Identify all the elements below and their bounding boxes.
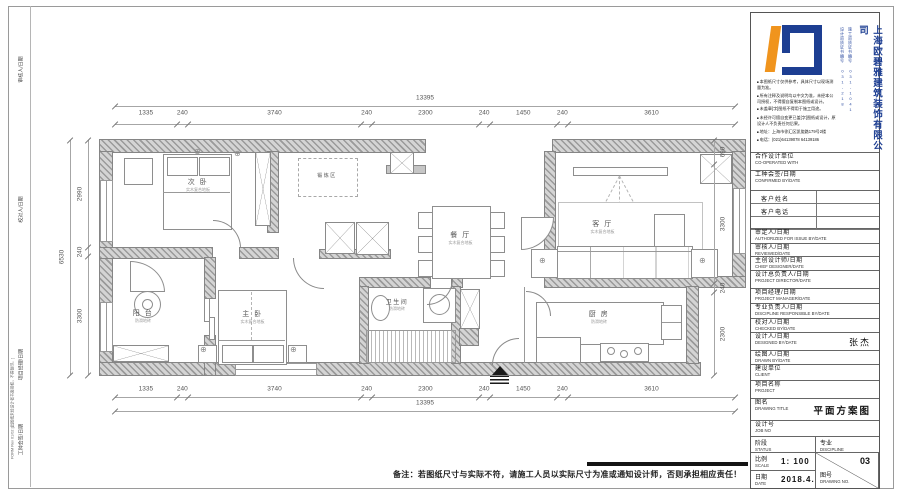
title-block-row: 建设单位CLIENT xyxy=(751,365,879,381)
drawing-number-value: 03 xyxy=(860,456,870,466)
wall-balcony-divider-top xyxy=(205,258,215,298)
title-block-row: 设计总负责人/日期PROJECT DIRECTOR/DATE xyxy=(751,271,879,289)
room-label-bathroom: 卫生间 防滑地砖 xyxy=(372,297,422,312)
title-block-row: 图名DRAWING TITLE平面方案图 xyxy=(751,399,879,421)
dimension-line xyxy=(115,124,735,125)
title-block-row: 设计号JOB NO xyxy=(751,421,879,437)
title-block-row: 审核人/日期REVIEWED/DATE xyxy=(751,244,879,257)
date-value: 2018.4.17 xyxy=(781,475,816,484)
company-logo-icon xyxy=(765,26,781,72)
company-name: 上海欧碧雅建筑装饰有限公司 xyxy=(855,25,883,155)
dimension-line xyxy=(115,397,735,398)
dimension-label: 240 xyxy=(557,110,568,117)
drawing-note: 电话：(021)64139078 64139186 xyxy=(757,137,837,143)
door-arc-kitchen xyxy=(526,291,551,316)
pillow xyxy=(222,345,253,363)
drawing-note: 地址：上海市徐汇区凯旋路179号2楼 xyxy=(757,129,837,135)
title-block-row: 专业负责人/日期DISCIPLINE RESPONSIBLE BY/DATE xyxy=(751,304,879,319)
dimension-label: 2300 xyxy=(418,386,432,393)
burner xyxy=(634,347,642,355)
wall-kitchen-right xyxy=(687,287,698,363)
dimension-label: 2300 xyxy=(720,326,727,340)
client-name-row: 客户姓名 xyxy=(751,191,879,204)
dimension-label: 2990 xyxy=(77,187,84,201)
footer-rule xyxy=(587,462,748,466)
chair xyxy=(490,236,505,253)
pillow xyxy=(167,157,198,176)
burner xyxy=(620,350,628,358)
title-block-rows: 合作设计单位CO-OPERATED WITH工种会签/日期CONFIRMED B… xyxy=(751,153,879,191)
chair xyxy=(418,236,433,253)
sofa-back-line xyxy=(557,251,691,252)
ceiling-light-icon: ⊕ xyxy=(200,346,207,354)
license-text: 施工资质证书编号 031-1041 xyxy=(847,27,853,145)
dimension-label: 240 xyxy=(479,110,490,117)
title-block-grid: 阶段 STATUS 专业 DISCIPLINE 比例 SCALE 1: 100 … xyxy=(751,437,879,488)
wall-top-left xyxy=(100,140,425,152)
plant xyxy=(130,261,165,292)
title-block-row: 校对人/日期CHECKED BY/DATE xyxy=(751,319,879,333)
dimension-label: 3610 xyxy=(644,386,658,393)
chair xyxy=(418,212,433,229)
side-table-square xyxy=(654,214,685,247)
kitchen-cabinet xyxy=(536,337,581,363)
drawing-note: 所有注释及说明均以中文为准，未经本公司授权，不得擅自复制本图纸或设计。 xyxy=(757,93,837,104)
room-label-kitchen: 厨 房 防滑地砖 xyxy=(570,309,628,325)
wall-bath-top-a xyxy=(360,278,430,287)
shower-area xyxy=(366,330,456,363)
dimension-line xyxy=(88,140,89,375)
dimension-label: 240 xyxy=(557,386,568,393)
drawing-notes: 本图纸尺寸仅供参考，具体尺寸以现场测量为准。所有注释及说明均以中文为准，未经本公… xyxy=(757,79,837,145)
client-box-divider xyxy=(816,191,817,229)
title-block-row: 项目名称PROJECT xyxy=(751,381,879,399)
dimension-label: 3300 xyxy=(720,217,727,231)
drawing-note: 本图纸尺寸仅供参考，具体尺寸以现场测量为准。 xyxy=(757,79,837,90)
shaft-wall xyxy=(460,329,478,345)
chair xyxy=(490,260,505,277)
dimension-label: 240 xyxy=(77,246,84,257)
dimension-label: 3300 xyxy=(77,308,84,322)
date-cell: 日期 DATE 2018.4.17 xyxy=(751,471,816,488)
entry-hatch-icon xyxy=(490,376,509,384)
dimension-label: 13395 xyxy=(416,400,434,407)
title-block-rows: 审定人/日期AUTHORIZED FOR ISSUE BY/DATE审核人/日期… xyxy=(751,229,879,437)
dimension-label: 3740 xyxy=(267,386,281,393)
license-text: 设计资质证书编号 031-218 xyxy=(839,27,845,145)
discipline-cell: 专业 DISCIPLINE xyxy=(816,437,879,453)
hall-closet-1 xyxy=(325,222,355,254)
ceiling-light-icon: ⊕ xyxy=(234,150,241,158)
wall-kitchen-left-line xyxy=(524,287,525,363)
footer-note: 备注：若图纸尺寸与实际不符，请施工人员以实际尺寸为准或通知设计师，否则承担相应责… xyxy=(393,469,742,480)
shaft-column xyxy=(460,289,480,329)
title-block: 本图纸尺寸仅供参考，具体尺寸以现场测量为准。所有注释及说明均以中文为准，未经本公… xyxy=(750,12,880,489)
pillow xyxy=(253,345,284,363)
ceiling-light-icon: ⊕ xyxy=(290,346,297,354)
chair xyxy=(418,260,433,277)
sliding-door-leaf-2 xyxy=(209,317,215,340)
window-left-balcony xyxy=(100,302,113,352)
dimension-label: 2300 xyxy=(418,110,432,117)
balcony-cabinet xyxy=(113,345,169,362)
dimension-label: 240 xyxy=(361,110,372,117)
room-label-exercise: 锻炼区 xyxy=(298,172,356,179)
status-cell: 阶段 STATUS xyxy=(751,437,816,453)
dimension-label: 3610 xyxy=(644,110,658,117)
dimension-line xyxy=(714,140,715,375)
dimension-label: 13395 xyxy=(416,95,434,102)
dimension-label: 1450 xyxy=(516,110,530,117)
dimension-label: 1335 xyxy=(139,110,153,117)
room-label-dining: 餐 厅 实木复合地板 xyxy=(434,230,487,246)
fridge xyxy=(661,305,682,340)
wardrobe-bedroom2 xyxy=(255,152,271,226)
dimension-line xyxy=(115,411,735,412)
dimension-label: 240 xyxy=(720,282,727,293)
window-left-upper xyxy=(100,180,113,242)
burner xyxy=(607,347,615,355)
dimension-label: 690 xyxy=(720,147,727,158)
drawing-note: 未盖章[字]图纸不得用于施工用途。 xyxy=(757,106,837,112)
room-label-living: 客 厅 实木复合地板 xyxy=(575,219,630,235)
entry-arrow-icon xyxy=(492,366,508,375)
nightstand xyxy=(124,158,153,185)
column-top-right xyxy=(700,154,732,184)
scale-value: 1: 100 xyxy=(781,457,810,466)
title-block-value: 张杰 xyxy=(849,335,871,348)
wall-bath-top-b xyxy=(452,278,462,287)
drawing-number-cell: 03 图号 DRAWING NO. xyxy=(816,453,879,488)
wall-mid-b xyxy=(240,248,278,258)
ceiling-light-icon: ⊕ xyxy=(194,148,201,156)
room-label-bedroom2: 次 卧 实木复合地板 xyxy=(168,177,228,193)
wall-top-right xyxy=(553,140,745,152)
dimension-label: 240 xyxy=(479,386,490,393)
door-arc-master xyxy=(293,258,324,289)
chair xyxy=(490,212,505,229)
company-logo-icon xyxy=(782,25,822,75)
company-header: 本图纸尺寸仅供参考，具体尺寸以现场测量为准。所有注释及说明均以中文为准，未经本公… xyxy=(751,13,879,153)
hall-closet-2 xyxy=(356,222,389,255)
dimension-label: 6530 xyxy=(59,250,66,264)
dimension-label: 240 xyxy=(361,386,372,393)
dimension-line xyxy=(115,106,735,107)
tv-unit xyxy=(573,167,668,176)
title-block-row: 主创设计师/日期CHIEF DESIGNER/DATE xyxy=(751,257,879,271)
pillow xyxy=(199,157,230,176)
bed-line xyxy=(218,340,285,341)
column-top-mid xyxy=(390,152,414,174)
title-block-row: 项目经理/日期PROJECT MANAGER/DATE xyxy=(751,289,879,304)
room-label-balcony: 阳 台 防滑地砖 xyxy=(118,308,168,324)
dimension-line xyxy=(70,140,71,375)
drawing-note: 未经许可擅自变更已盖[字]图纸或设计，原设计人不负责任何后果。 xyxy=(757,115,837,126)
title-block-row: 审定人/日期AUTHORIZED FOR ISSUE BY/DATE xyxy=(751,229,879,244)
title-block-row: 合作设计单位CO-OPERATED WITH xyxy=(751,153,879,171)
scale-cell: 比例 SCALE 1: 100 xyxy=(751,453,816,471)
company-logo-icon xyxy=(782,53,792,67)
window-right-living xyxy=(733,188,746,254)
title-block-value: 平面方案图 xyxy=(813,403,871,417)
wall-mid-a xyxy=(100,248,212,258)
ceiling-light-icon: ⊕ xyxy=(539,257,546,265)
title-block-row: 绘图人/日期DRAWN BY/DATE xyxy=(751,351,879,365)
ceiling-light-icon: ⊕ xyxy=(699,257,706,265)
dimension-label: 240 xyxy=(177,386,188,393)
dimension-label: 240 xyxy=(177,110,188,117)
title-block-row: 工种会签/日期CONFIRMED BY/DATE xyxy=(751,171,879,191)
dimension-label: 1450 xyxy=(516,386,530,393)
door-arc-bedroom2 xyxy=(213,220,241,248)
client-phone-row: 客户电话 xyxy=(751,204,879,217)
wall-bottom xyxy=(100,363,700,375)
room-label-master: 主 卧 实木复合地板 xyxy=(225,309,280,325)
dimension-label: 1335 xyxy=(139,386,153,393)
dimension-label: 3740 xyxy=(267,110,281,117)
client-info-box: 客户姓名 客户电话 xyxy=(751,191,879,229)
title-block-row: 设计人/日期DESIGNED BY/DATE张杰 xyxy=(751,333,879,351)
door-arc-entry xyxy=(492,338,519,365)
